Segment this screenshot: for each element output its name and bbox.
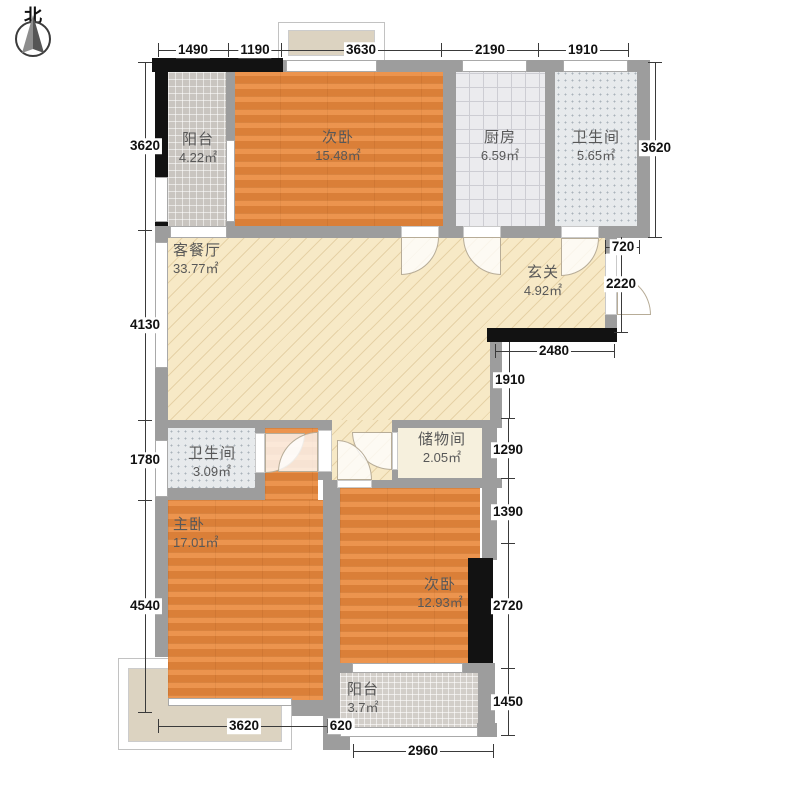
dim-tick bbox=[228, 43, 229, 57]
dim-tick bbox=[501, 543, 515, 544]
window-balcony-north-left bbox=[155, 177, 168, 222]
door-opening-master-bedroom bbox=[318, 430, 332, 472]
floor-plan: 北 bbox=[0, 0, 800, 800]
balcony-south-label: 阳台 3.7㎡ bbox=[328, 680, 398, 716]
dim-tick bbox=[158, 43, 159, 57]
dim-label: 620 bbox=[328, 718, 355, 734]
dim-label: 2190 bbox=[473, 42, 507, 58]
dim-tick bbox=[614, 332, 628, 333]
dim-label: 2480 bbox=[537, 343, 571, 359]
dim-label: 3620 bbox=[128, 138, 162, 154]
room-name: 主卧 bbox=[173, 515, 283, 535]
dim-label: 3630 bbox=[344, 42, 378, 58]
door-opening-bedroom-south bbox=[337, 480, 372, 488]
dim-tick bbox=[138, 62, 152, 63]
dim-tick bbox=[138, 712, 152, 713]
room-name: 次卧 bbox=[268, 128, 408, 148]
window-kitchen-top bbox=[462, 60, 527, 72]
dim-tick bbox=[138, 420, 152, 421]
window-bedroom-north-bay bbox=[286, 60, 377, 72]
room-area: 3.09㎡ bbox=[166, 464, 258, 481]
dim-label: 1910 bbox=[566, 42, 600, 58]
window-bathroom-north-top bbox=[563, 60, 628, 72]
window-bedroom-south-bottom bbox=[352, 663, 463, 673]
bathroom-north-label: 卫生间 5.65㎡ bbox=[546, 128, 646, 164]
dim-label: 1190 bbox=[238, 42, 271, 58]
dim-label: 720 bbox=[610, 239, 637, 255]
window-master-bay bbox=[168, 698, 292, 706]
wall-foyer-bottom-accent bbox=[487, 328, 617, 342]
living-dining-label: 客餐厅 33.77㎡ bbox=[173, 241, 303, 277]
dim-tick bbox=[538, 43, 539, 57]
room-area: 4.92㎡ bbox=[493, 283, 593, 300]
room-area: 5.65㎡ bbox=[546, 148, 646, 165]
room-area: 3.7㎡ bbox=[328, 700, 398, 717]
dim-tick bbox=[648, 62, 662, 63]
room-name: 厨房 bbox=[450, 128, 550, 148]
room-name: 卫生间 bbox=[546, 128, 646, 148]
room-name: 客餐厅 bbox=[173, 241, 303, 261]
dim-tick bbox=[501, 735, 515, 736]
dim-label: 1780 bbox=[128, 452, 162, 468]
dim-tick bbox=[158, 719, 159, 733]
room-area: 4.22㎡ bbox=[168, 150, 228, 167]
dim-tick bbox=[493, 744, 494, 758]
dim-tick bbox=[605, 240, 606, 254]
room-area: 2.05㎡ bbox=[396, 450, 488, 467]
dim-label: 2960 bbox=[406, 743, 440, 759]
dim-label: 4130 bbox=[128, 317, 162, 333]
dim-tick bbox=[138, 230, 152, 231]
wall-master-bedroom-right bbox=[323, 480, 340, 673]
wall-row3-top-left bbox=[155, 420, 332, 428]
storage-label: 储物间 2.05㎡ bbox=[396, 430, 488, 466]
dim-tick bbox=[495, 344, 496, 358]
wall-master-bottom-right bbox=[292, 700, 332, 716]
dim-label: 1490 bbox=[176, 42, 210, 58]
wall-top-accent bbox=[152, 58, 283, 72]
dim-label: 1450 bbox=[491, 694, 525, 710]
north-arrow-icon bbox=[19, 15, 47, 55]
door-opening-bathroom-north bbox=[561, 226, 599, 238]
room-area: 15.48㎡ bbox=[268, 148, 408, 165]
dim-tick bbox=[441, 43, 442, 57]
room-area: 33.77㎡ bbox=[173, 261, 303, 278]
dim-tick bbox=[501, 668, 515, 669]
window-living-left bbox=[155, 242, 168, 368]
dim-label: 3620 bbox=[227, 718, 261, 734]
foyer-label: 玄关 4.92㎡ bbox=[493, 263, 593, 299]
room-name: 卫生间 bbox=[166, 444, 258, 464]
living-dining-floor-lower bbox=[168, 330, 490, 420]
window-balcony-north-living bbox=[170, 226, 227, 238]
room-name: 阳台 bbox=[328, 680, 398, 700]
room-name: 次卧 bbox=[390, 575, 490, 595]
wall-balcony-south-post-right bbox=[477, 723, 497, 737]
dim-tick bbox=[281, 43, 282, 57]
balcony-north-label: 阳台 4.22㎡ bbox=[168, 130, 228, 166]
room-name: 储物间 bbox=[396, 430, 488, 450]
dim-tick bbox=[639, 240, 640, 254]
bathroom-south-label: 卫生间 3.09㎡ bbox=[166, 444, 258, 480]
dim-label: 4540 bbox=[128, 598, 162, 614]
dim-tick bbox=[501, 418, 515, 419]
dim-label: 2720 bbox=[491, 598, 525, 614]
room-area: 6.59㎡ bbox=[450, 148, 550, 165]
wall-balcony-south-post-left bbox=[332, 737, 350, 750]
dim-tick bbox=[353, 744, 354, 758]
master-bedroom-label: 主卧 17.01㎡ bbox=[173, 515, 283, 551]
bedroom-south-label: 次卧 12.93㎡ bbox=[390, 575, 490, 611]
room-name: 阳台 bbox=[168, 130, 228, 150]
bedroom-north-label: 次卧 15.48㎡ bbox=[268, 128, 408, 164]
balcony-south-rail bbox=[340, 727, 478, 737]
dim-label: 1910 bbox=[493, 372, 527, 388]
dim-tick bbox=[628, 43, 629, 57]
dim-line-left bbox=[145, 62, 146, 712]
dim-label: 3620 bbox=[639, 140, 673, 156]
room-area: 17.01㎡ bbox=[173, 535, 283, 552]
wall-bathroom-south-bottom bbox=[155, 488, 265, 500]
room-name: 玄关 bbox=[493, 263, 593, 283]
dim-tick bbox=[614, 344, 615, 358]
room-area: 12.93㎡ bbox=[390, 595, 490, 612]
dim-tick bbox=[648, 237, 662, 238]
dim-tick bbox=[501, 478, 515, 479]
dim-line-right-lower bbox=[508, 418, 509, 735]
wall-left-upper-accent bbox=[155, 58, 168, 177]
dim-label: 2220 bbox=[604, 276, 638, 292]
dim-label: 1390 bbox=[491, 504, 525, 520]
kitchen-label: 厨房 6.59㎡ bbox=[450, 128, 550, 164]
dim-tick bbox=[138, 500, 152, 501]
dim-label: 1290 bbox=[491, 442, 525, 458]
